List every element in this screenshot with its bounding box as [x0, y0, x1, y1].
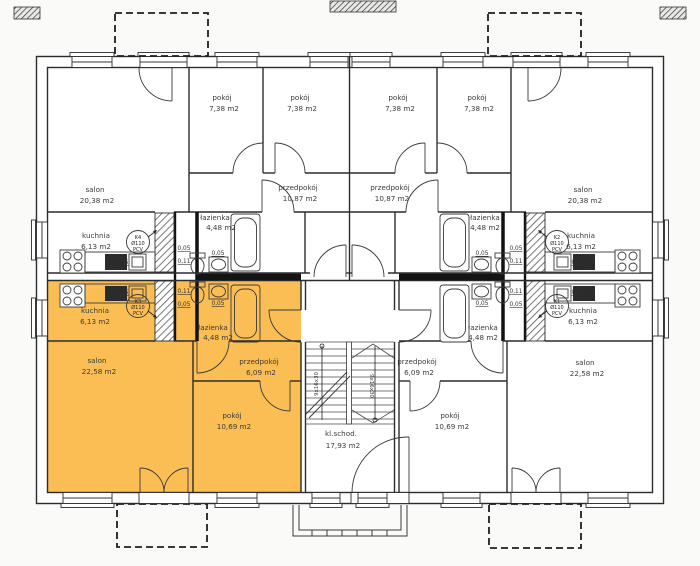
room-label-salon-tl: salon — [85, 185, 104, 194]
window — [441, 53, 485, 68]
stack-k1-material: PCV — [552, 311, 563, 317]
room-label-lazienka-bl: łazienka — [198, 323, 228, 332]
window — [310, 493, 342, 508]
window — [215, 53, 259, 68]
room-label-pokoj-tr1: pokój — [388, 93, 407, 102]
floor-plan-drawing: K4 Ø110 PCV K3 Ø110 PCV K2 Ø110 PCV K1 Ø… — [0, 0, 700, 566]
room-label-salon-tr: salon — [573, 185, 592, 194]
dim-label: 0,05 — [476, 301, 489, 307]
svg-text:20,38 m2: 20,38 m2 — [568, 196, 602, 205]
room-label-kuchnia-bl: kuchnia — [81, 306, 109, 315]
window — [308, 53, 350, 68]
svg-text:7,38 m2: 7,38 m2 — [287, 104, 317, 113]
window — [653, 220, 669, 260]
room-label-przedpokoj-br: przedpokój — [397, 357, 437, 366]
window — [32, 220, 48, 260]
dim-label: 0,05 — [116, 290, 129, 296]
vent-shaft — [526, 213, 545, 272]
room-label-pokoj-bl: pokój — [222, 411, 241, 420]
room-label-pokoj-tl1: pokój — [212, 93, 231, 102]
stair-run-note-right: 9x16x30 — [368, 374, 374, 399]
room-label-przedpokoj-tl: przedpokój — [278, 183, 318, 192]
chimney-block-left — [14, 7, 40, 19]
chimney-block-center — [330, 1, 396, 12]
room-label-kuchnia-tl: kuchnia — [82, 231, 110, 240]
floor-plan-page: K4 Ø110 PCV K3 Ø110 PCV K2 Ø110 PCV K1 Ø… — [0, 0, 700, 566]
dim-label: 0,05 — [572, 290, 585, 296]
dim-label: 0,05 — [212, 301, 225, 307]
svg-text:6,09 m2: 6,09 m2 — [404, 368, 434, 377]
svg-text:10,87 m2: 10,87 m2 — [375, 194, 409, 203]
window — [70, 53, 114, 68]
svg-text:6,13 m2: 6,13 m2 — [80, 317, 110, 326]
svg-text:6,13 m2: 6,13 m2 — [566, 242, 596, 251]
window — [356, 493, 389, 508]
svg-text:7,38 m2: 7,38 m2 — [385, 104, 415, 113]
svg-text:6,13 m2: 6,13 m2 — [568, 317, 598, 326]
room-label-lazienka-br: łazienka — [468, 323, 498, 332]
window — [441, 493, 482, 508]
window — [586, 53, 630, 68]
svg-text:4,48 m2: 4,48 m2 — [470, 223, 500, 232]
svg-text:6,09 m2: 6,09 m2 — [246, 368, 276, 377]
window — [511, 53, 562, 68]
window — [653, 298, 669, 338]
window — [350, 53, 392, 68]
dim-label: 0,05 — [178, 302, 191, 308]
dim-label: 0,05 — [476, 251, 489, 257]
stack-k3-material: PCV — [133, 311, 144, 317]
window — [32, 298, 48, 338]
stair-stringer — [347, 342, 352, 424]
svg-text:22,58 m2: 22,58 m2 — [570, 369, 604, 378]
chimney-block-right — [660, 7, 686, 19]
dim-label: 0,05 — [116, 260, 129, 266]
room-label-lazienka-tl: łazienka — [200, 213, 230, 222]
room-label-przedpokoj-bl: przedpokój — [239, 357, 279, 366]
room-label-kuchnia-tr: kuchnia — [567, 231, 595, 240]
svg-text:4,48 m2: 4,48 m2 — [206, 223, 236, 232]
room-label-przedpokoj-tr: przedpokój — [370, 183, 410, 192]
svg-text:4,48 m2: 4,48 m2 — [468, 333, 498, 342]
stack-k2-diameter: Ø110 — [550, 240, 563, 247]
dim-label: 0,11 — [510, 289, 523, 295]
svg-text:10,87 m2: 10,87 m2 — [283, 194, 317, 203]
stack-k3-diameter: Ø110 — [131, 304, 144, 311]
room-label-staircase: kl.schod. — [325, 429, 357, 438]
dim-label: 0,05 — [212, 251, 225, 257]
svg-text:6,13 m2: 6,13 m2 — [81, 242, 111, 251]
stack-k2-material: PCV — [552, 247, 563, 253]
dim-label: 0,05 — [510, 246, 523, 252]
vent-shaft — [155, 213, 174, 272]
room-label-salon-br: salon — [575, 358, 594, 367]
svg-text:4,48 m2: 4,48 m2 — [203, 333, 233, 342]
svg-text:10,69 m2: 10,69 m2 — [435, 422, 469, 431]
svg-text:10,69 m2: 10,69 m2 — [217, 422, 251, 431]
dim-label: 0,05 — [510, 302, 523, 308]
window — [586, 493, 630, 508]
stair-run-note-left: 9x16x30 — [314, 372, 320, 397]
svg-text:20,38 m2: 20,38 m2 — [80, 196, 114, 205]
room-label-lazienka-tr: łazienka — [470, 213, 500, 222]
room-label-pokoj-tr2: pokój — [467, 93, 486, 102]
dim-label: 0,11 — [178, 289, 191, 295]
dim-label: 0,05 — [572, 260, 585, 266]
window — [215, 493, 259, 508]
room-label-kuchnia-br: kuchnia — [569, 306, 597, 315]
window — [138, 53, 189, 68]
svg-text:17,93 m2: 17,93 m2 — [326, 441, 360, 450]
dim-label: 0,11 — [178, 259, 191, 265]
room-label-pokoj-tl2: pokój — [290, 93, 309, 102]
stack-k1-diameter: Ø110 — [550, 304, 563, 311]
window — [61, 493, 114, 508]
vent-shaft — [526, 281, 545, 341]
stack-k4-diameter: Ø110 — [131, 240, 144, 247]
svg-text:7,38 m2: 7,38 m2 — [464, 104, 494, 113]
room-label-pokoj-br: pokój — [440, 411, 459, 420]
dim-label: 0,05 — [178, 246, 191, 252]
vent-shaft — [155, 281, 174, 341]
dim-label: 0,11 — [510, 259, 523, 265]
svg-text:7,38 m2: 7,38 m2 — [209, 104, 239, 113]
svg-text:22,58 m2: 22,58 m2 — [82, 367, 116, 376]
room-label-salon-bl: salon — [87, 356, 106, 365]
stack-k4-material: PCV — [133, 247, 144, 253]
